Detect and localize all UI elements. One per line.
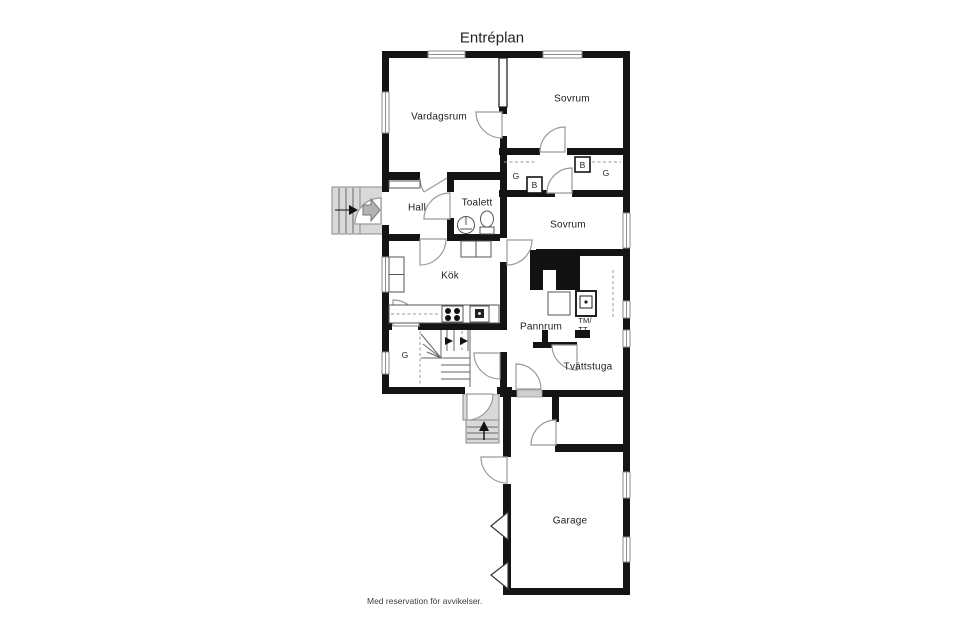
label-toalett: Toalett [462,198,493,209]
chimney-block [530,250,580,290]
closet-passage-door-swing [547,168,572,193]
garage-side-door-swing [481,457,507,483]
label-closet-g1: G [513,171,520,181]
label-vardagsrum: Vardagsrum [411,112,467,123]
kok-door-swing [420,239,446,265]
tvattstuga-door-swing [516,364,541,389]
hall-cabinet [389,181,420,188]
label-kok: Kök [441,271,459,282]
toilet-icon [480,211,494,234]
kitchen-sink-icon [470,306,489,322]
page-title: Entréplan [460,30,524,47]
sovrum2-door-swing [507,240,532,265]
stair-direction-arrow-icon [460,337,468,345]
label-closet-g2: G [603,168,610,178]
staircase [420,330,470,387]
stair-direction-arrow-icon [445,337,453,345]
label-tt: TT [578,326,588,334]
vardagsrum-door-swing [476,112,502,138]
floorplan-page: Entréplan Vardagsrum Sovrum Hall Toalett… [0,0,960,640]
label-closet-b2: B [580,160,586,170]
boiler-icon [548,292,570,315]
label-pannrum: Pannrum [520,322,562,333]
sink-icon [458,217,475,234]
washing-machine-icon [576,291,596,316]
toalett-door-swing [424,193,450,219]
label-hall: Hall [408,203,426,214]
label-garage: Garage [553,516,588,527]
floorplan-drawing [0,0,960,640]
stove-icon [442,306,463,322]
label-closet-b1: B [532,180,538,190]
sovrum1-door-swing [540,127,565,152]
label-sovrum-2: Sovrum [550,220,586,231]
label-tm: TM/ [578,317,592,325]
corridor-door-swing [531,420,556,445]
disclaimer-text: Med reservation för avvikelser. [367,596,482,606]
label-tvattstuga: Tvättstuga [564,362,613,373]
label-closet-g3: G [402,350,409,360]
back-hall-door-swing [474,353,500,379]
label-sovrum-1: Sovrum [554,94,590,105]
